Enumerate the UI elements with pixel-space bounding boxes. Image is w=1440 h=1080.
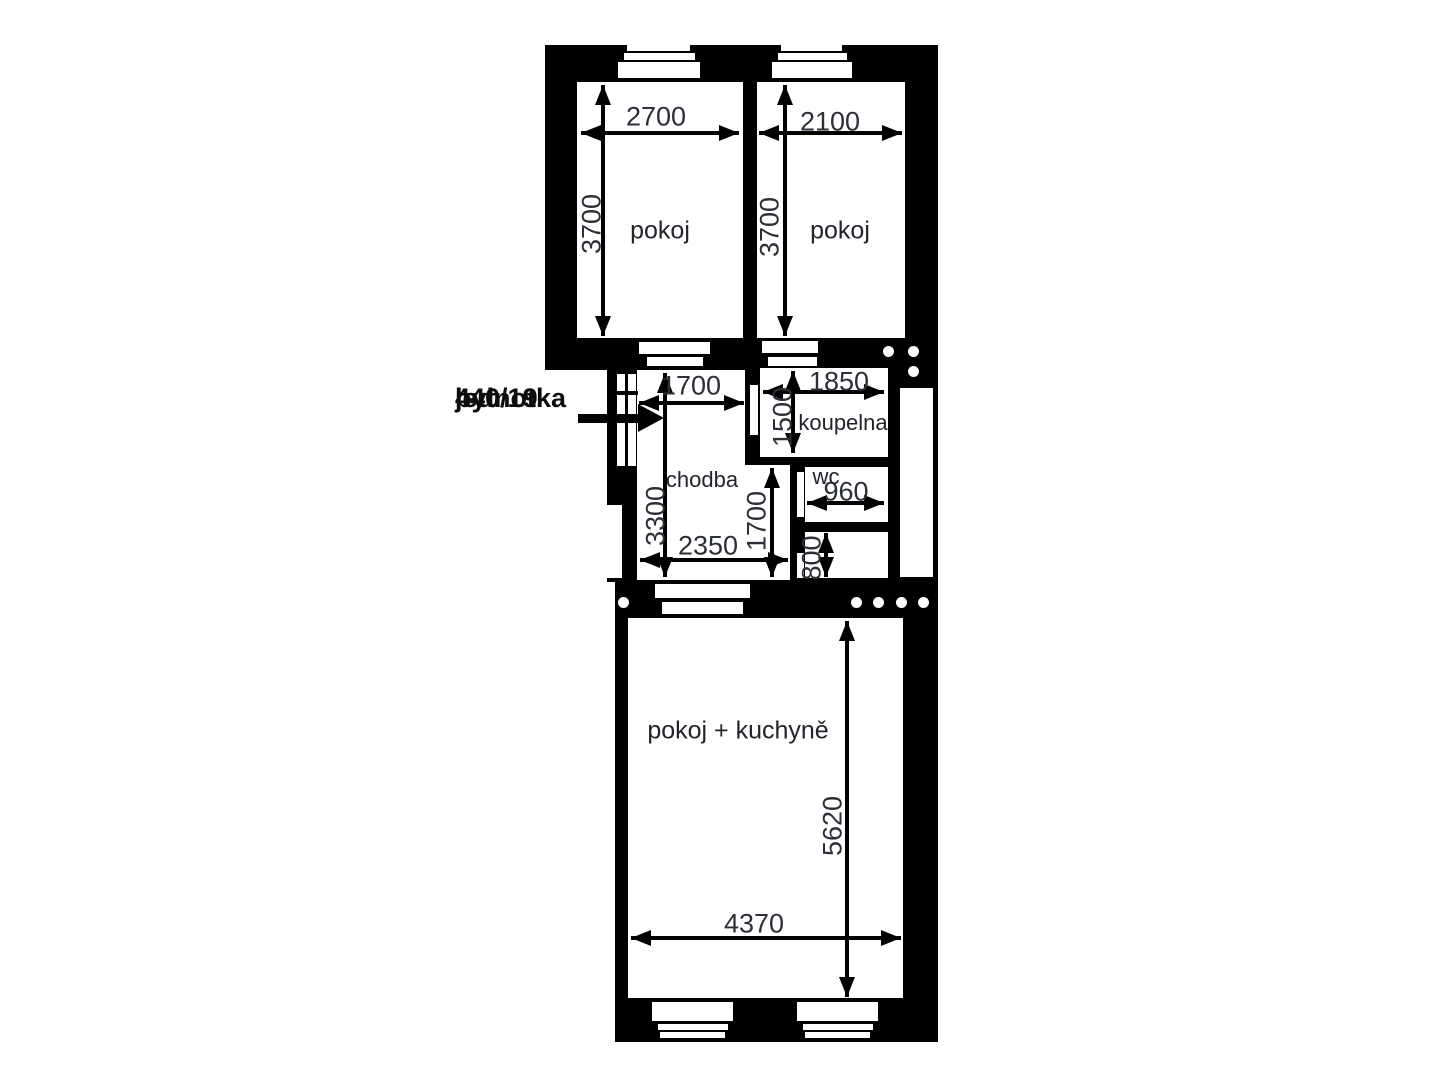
label-chodba: chodba: [666, 467, 738, 493]
door-strip: [655, 584, 750, 598]
dim-pokoj-kuchyne-width: 4370: [724, 909, 784, 940]
dim-chodba-top: 1700: [661, 371, 721, 402]
door-strip: [662, 602, 743, 614]
door-strip: [647, 357, 703, 366]
door-strip: [639, 342, 710, 354]
door-strip: [762, 341, 818, 353]
window-strip: [618, 62, 700, 78]
wall-dot: [873, 597, 884, 608]
dim-chodba-left: 3300: [641, 486, 672, 546]
label-pokoj-kuchyne: pokoj + kuchyně: [647, 717, 828, 746]
unit-annotation-line3: byt: [455, 383, 496, 414]
dim-pokoj-kuchyne-height: 5620: [818, 796, 849, 856]
dim-koupelna-width: 1850: [809, 367, 869, 398]
window-strip: [627, 45, 690, 51]
label-pokoj-left: pokoj: [630, 217, 690, 246]
door-strip: [768, 357, 817, 366]
door-koupelna: [750, 385, 758, 435]
window-strip: [778, 53, 847, 60]
label-koupelna: koupelna: [798, 410, 887, 436]
dim-komora-height: 800: [797, 535, 828, 580]
window-strip: [652, 1002, 733, 1021]
unit-pointer-arrowhead-icon: [638, 404, 664, 432]
window-strip: [803, 1024, 873, 1030]
wall-dot: [908, 346, 919, 357]
window-strip: [772, 62, 852, 78]
dim-chodba-right: 1700: [742, 491, 773, 551]
wall-recess: [598, 505, 622, 578]
window-strip: [660, 1032, 725, 1038]
dim-pokoj-right-height: 3700: [755, 197, 786, 257]
wall-dot: [896, 597, 907, 608]
shaft-niche: [900, 388, 933, 577]
wall-dot: [908, 366, 919, 377]
window-strip: [658, 1024, 728, 1030]
dim-chodba-bottom: 2350: [678, 531, 738, 562]
label-wc: wc: [813, 464, 840, 490]
unit-pointer-arrow: [578, 414, 640, 423]
wall-dot: [883, 346, 894, 357]
window-strip: [805, 1032, 870, 1038]
door-tick: [615, 391, 638, 395]
dim-pokoj-left-width: 2700: [626, 102, 686, 133]
window-strip: [781, 45, 842, 51]
wall-dot: [918, 597, 929, 608]
dim-pokoj-left-height: 3700: [577, 194, 608, 254]
dim-koupelna-height: 1500: [768, 387, 799, 447]
label-pokoj-right: pokoj: [810, 217, 870, 246]
dim-pokoj-right-width: 2100: [800, 107, 860, 138]
window-strip: [624, 53, 695, 60]
wall-dot: [851, 597, 862, 608]
room-pokoj-kuchyne: [628, 618, 903, 998]
wall-dot: [618, 597, 629, 608]
window-strip: [797, 1002, 878, 1021]
floor-plan: 2700 3700 2100 3700 1700 3300 2350 1700 …: [0, 0, 1440, 1080]
door-wc: [797, 472, 804, 517]
